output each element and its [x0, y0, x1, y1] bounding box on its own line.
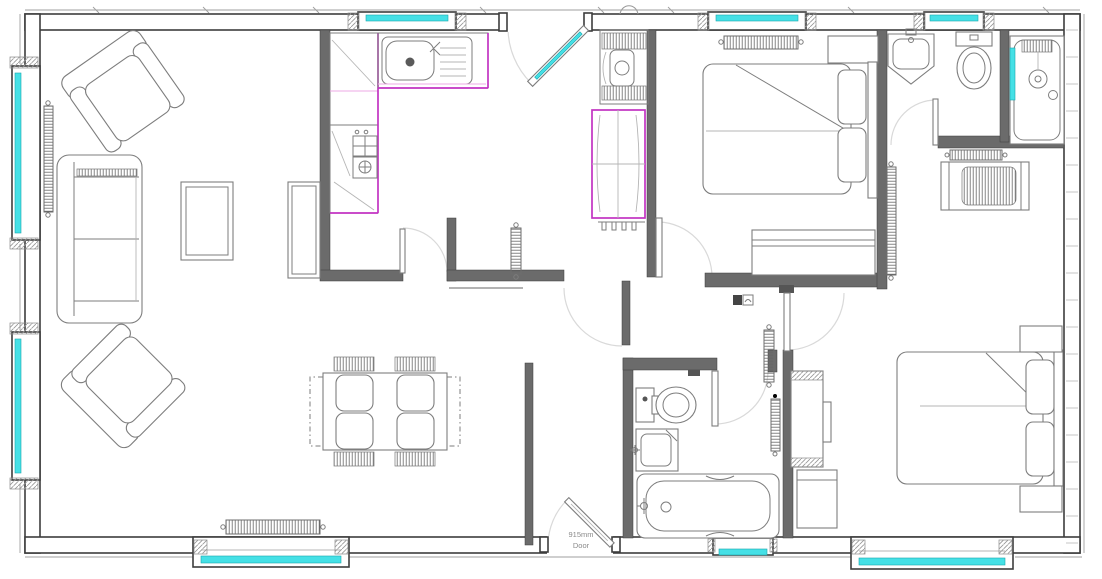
chest-of-drawers [752, 230, 875, 275]
dining-chair-back [334, 357, 374, 371]
bed1-door [656, 218, 662, 277]
pillow [1026, 360, 1054, 414]
window-bed2-bay-south [851, 537, 1013, 569]
shower-room-door [933, 99, 938, 145]
window-bathroom-south [708, 538, 777, 555]
toilet-shower-room [956, 32, 992, 89]
window-lounge-west-1 [10, 57, 40, 249]
dining-chair-seat [397, 375, 434, 411]
wall-shower-divider [1000, 30, 1009, 142]
thermostat-control [733, 295, 742, 305]
dining-chair-back [334, 452, 374, 466]
dining-chair-seat [397, 413, 434, 449]
hall-radiator [511, 223, 521, 279]
bed1-radiator [719, 36, 803, 49]
wardrobe-knob [823, 402, 831, 442]
dining-area [310, 357, 460, 466]
floor-plan: 915mm Door [0, 0, 1102, 579]
shower-glass-door [1010, 48, 1015, 100]
dining-chair-back [395, 452, 435, 466]
wall-kitchen-south [320, 270, 403, 281]
corridor-radiator [764, 325, 774, 387]
wall-kitchen-west [320, 30, 330, 276]
sofa [57, 155, 142, 323]
dressing-radiator [945, 150, 1007, 160]
bedside-table [828, 36, 878, 63]
left-wall-radiator [44, 101, 53, 217]
bedside-table [1020, 326, 1062, 352]
basin-bathroom [630, 429, 678, 471]
window-kitchen-north [348, 12, 466, 30]
dining-chair-seat [336, 413, 373, 449]
toilet-bathroom [636, 387, 696, 423]
floor-plan-canvas: 915mm Door [0, 0, 1102, 579]
pillow [1026, 422, 1054, 476]
headboard [1054, 350, 1063, 486]
door-stop [688, 370, 700, 376]
hinge-plate [779, 285, 794, 293]
dining-chair-back [395, 357, 435, 371]
bay-radiator [221, 520, 325, 534]
shower-fitting [1022, 40, 1052, 52]
door-label-line1: 915mm [568, 530, 593, 539]
wall-dining-stub [525, 363, 533, 545]
pillow [838, 70, 866, 124]
wall-lounge-door-return [622, 281, 630, 345]
dining-table [310, 373, 460, 450]
dining-chair-seat [336, 375, 373, 411]
bed1-east-radiator [887, 162, 896, 280]
dressing-table [941, 162, 1029, 210]
window-bed1-north [698, 12, 816, 30]
wall-east-studs [1066, 16, 1078, 551]
wall-bathroom-north [623, 358, 717, 370]
bedside-table [1020, 486, 1062, 512]
bathroom-door [712, 371, 718, 426]
wall-bed1-east [877, 30, 887, 289]
chest-bed2 [797, 470, 837, 528]
kitchen-door [400, 229, 405, 273]
tv-unit [288, 182, 320, 278]
wall-hall-south [447, 270, 564, 281]
pillow [838, 128, 866, 182]
bed-2 [897, 350, 1063, 486]
bed2-door [784, 293, 790, 351]
entrance-opening [499, 12, 592, 32]
window-shower-north [914, 12, 994, 30]
coffee-table [181, 182, 233, 260]
door-label-line2: Door [573, 541, 590, 550]
window-lounge-west-2 [10, 323, 40, 489]
shower-enclosure [1010, 36, 1064, 144]
dressing-stool [962, 167, 1016, 205]
bath [637, 474, 779, 538]
bed-1 [703, 62, 877, 198]
window-lounge-bay-south [193, 537, 349, 567]
wall-bathroom-west [623, 358, 633, 538]
towel-radiator [771, 394, 780, 456]
headboard [868, 62, 877, 198]
